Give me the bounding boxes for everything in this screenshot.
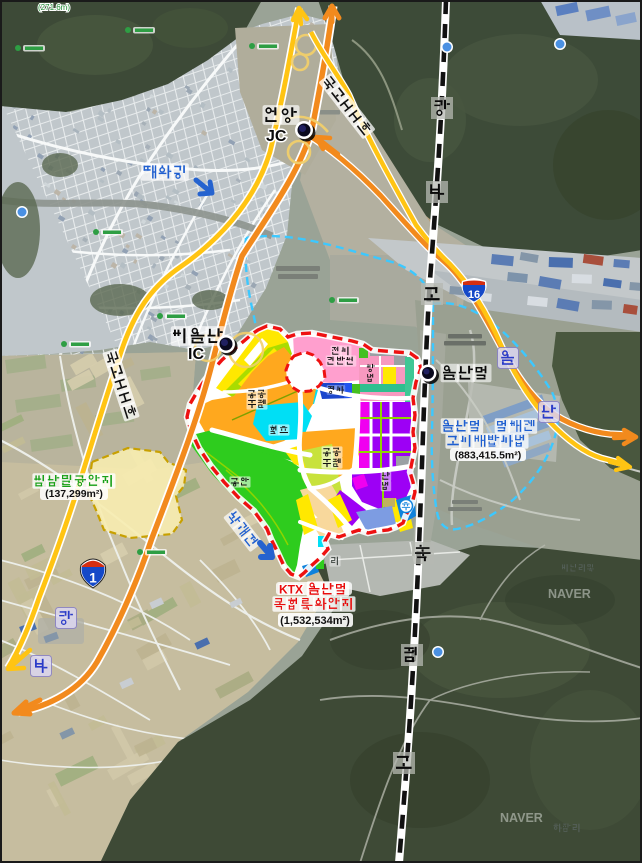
svg-text:KTX: KTX: [279, 583, 303, 597]
svg-text:JC: JC: [266, 128, 287, 145]
svg-text:NAVER: NAVER: [548, 587, 591, 601]
svg-text:1: 1: [89, 571, 97, 586]
svg-text:NAVER: NAVER: [500, 811, 543, 825]
svg-text:IC: IC: [188, 346, 204, 363]
svg-text:(883,415.5m²): (883,415.5m²): [455, 450, 522, 462]
svg-text:(271.6m): (271.6m): [38, 3, 70, 12]
svg-text:16: 16: [468, 289, 480, 301]
svg-text:(1,532,534m²): (1,532,534m²): [280, 615, 350, 627]
svg-text:(137,299m²): (137,299m²): [45, 488, 103, 500]
